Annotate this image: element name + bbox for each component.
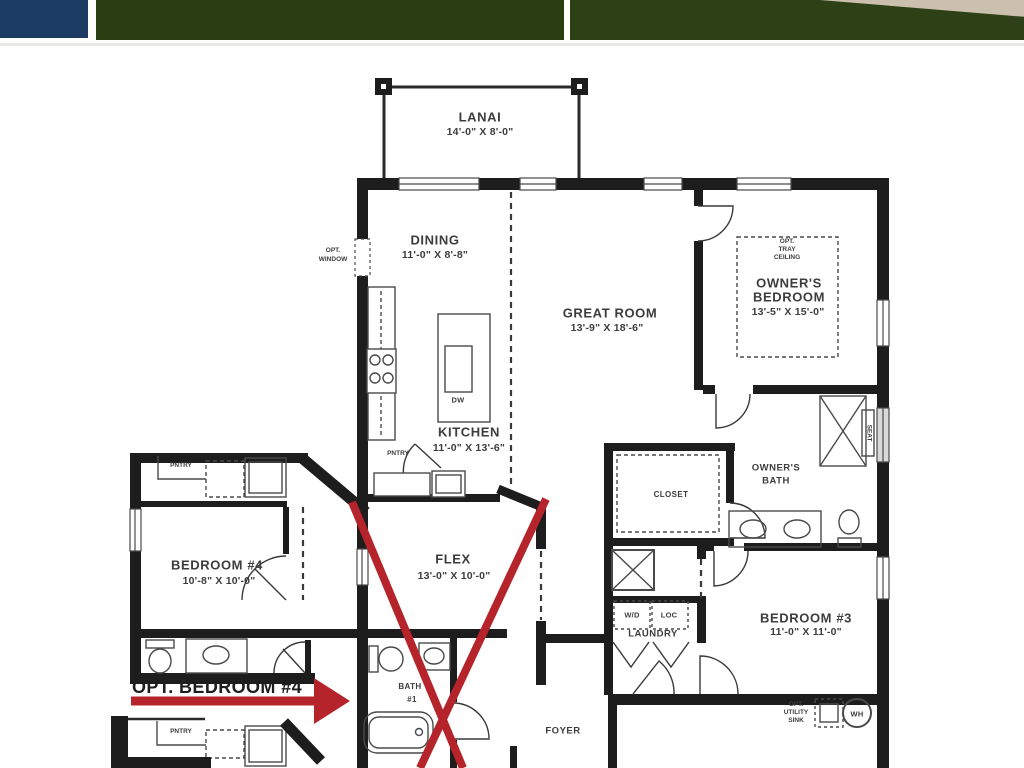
listing-page: LANAI 14'-0" X 8'-0" DINING 11'-0" X 8'-… <box>0 0 1024 768</box>
water-heater-label: WH <box>851 710 864 718</box>
room-label-flex: FLEX <box>435 553 471 566</box>
opt-utility-sink-label: OPT. <box>789 702 803 709</box>
room-dims-flex: 13'-0" X 10'-0" <box>418 571 491 582</box>
opt-window-label-2: WINDOW <box>319 257 348 264</box>
pantry-label-kitchen: PNTRY <box>387 451 409 458</box>
pantry-label-wing: PNTRY <box>170 463 192 470</box>
room-label-bath-1-2: #1 <box>407 696 417 704</box>
tray-ceiling-label-3: CEILING <box>774 255 800 262</box>
room-label-owners-bedroom: OWNER'S <box>756 277 822 290</box>
room-dims-kitchen: 11'-0" X 13'-6" <box>433 443 505 454</box>
room-dims-lanai: 14'-0" X 8'-0" <box>447 127 514 138</box>
opt-bedroom-4-annotation: OPT. BEDROOM #4 <box>132 677 302 698</box>
dishwasher-label: DW <box>452 396 465 404</box>
optional-plan-fragment <box>111 716 321 768</box>
tray-ceiling-label-2: TRAY <box>778 247 795 254</box>
floorplan-drawing <box>0 0 1024 768</box>
flex-diagonal-wall <box>498 489 542 507</box>
room-label-owners-bedroom-2: BEDROOM <box>753 291 825 304</box>
kitchen-fixtures <box>367 287 490 497</box>
washer-dryer-label: W/D <box>624 611 639 619</box>
room-dims-dining: 11'-0" X 8'-8" <box>402 250 468 261</box>
opt-utility-sink-label-3: SINK <box>788 718 804 725</box>
room-label-lanai: LANAI <box>459 111 502 124</box>
loc-label: LOC <box>661 611 677 619</box>
room-label-closet: CLOSET <box>654 491 689 499</box>
room-dims-bedroom-3: 11'-0" X 11'-0" <box>770 627 842 638</box>
room-label-kitchen: KITCHEN <box>438 426 500 439</box>
pantry-label-fragment: PNTRY <box>170 729 192 736</box>
tray-ceiling-label: OPT. <box>780 239 794 246</box>
room-label-bath-1: BATH <box>398 683 421 691</box>
room-label-bedroom-3: BEDROOM #3 <box>760 612 852 625</box>
opt-window-label: OPT. <box>326 248 340 255</box>
room-label-owners-bath: OWNER'S <box>752 463 801 473</box>
room-label-laundry: LAUNDRY <box>628 629 678 639</box>
seat-label: SEAT <box>865 425 872 442</box>
room-label-foyer: FOYER <box>545 726 580 736</box>
room-dims-bedroom-4: 10'-8" X 10'-0" <box>183 576 256 587</box>
room-dims-great-room: 13'-9" X 18'-6" <box>571 323 644 334</box>
room-dims-owners-bedroom: 13'-5" X 15'-0" <box>752 307 825 318</box>
room-label-great-room: GREAT ROOM <box>563 307 658 320</box>
opt-utility-sink-label-2: UTILITY <box>784 710 809 717</box>
room-label-dining: DINING <box>410 234 459 247</box>
room-label-owners-bath-2: BATH <box>762 476 790 486</box>
room-label-bedroom-4: BEDROOM #4 <box>171 559 263 572</box>
